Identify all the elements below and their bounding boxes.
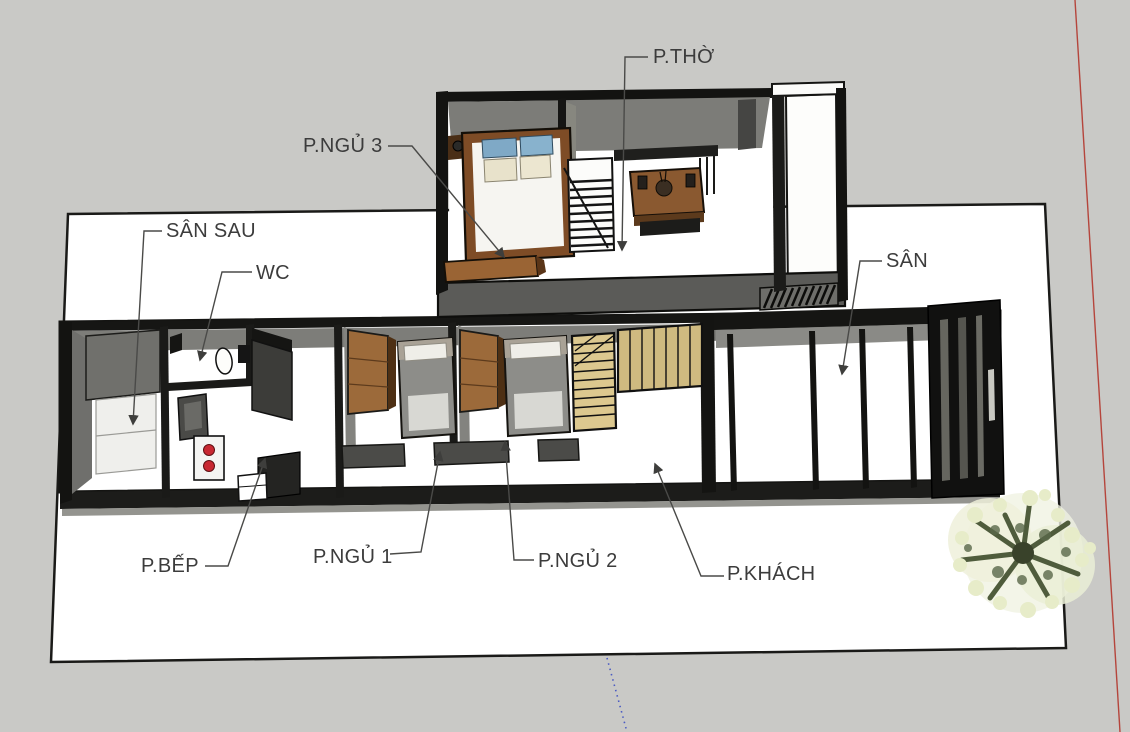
ground-floor [60,300,1004,516]
wardrobe-bedroom-1 [348,330,388,414]
balcony [786,94,838,298]
front-gate [928,300,1004,498]
altar-table [630,168,704,236]
staircase-upper-floor [564,158,614,252]
model-canvas [0,0,1130,732]
sketchup-3d-viewport[interactable]: P.THỜ P.NGỦ 3 SÂN SAU WC SÂN P.BẾP P.NGỦ… [0,0,1130,732]
wardrobe-bedroom-2 [460,330,498,412]
label-p-tho: P.THỜ [653,46,715,69]
label-p-ngu-1: P.NGỦ 1 [313,546,393,569]
label-wc: WC [256,262,290,285]
label-san: SÂN [886,250,928,273]
stove [194,436,224,480]
label-p-ngu-3: P.NGỦ 3 [303,135,383,158]
label-p-bep: P.BẾP [141,555,199,578]
bed-bedroom-2 [504,336,570,436]
kitchen-counter [252,340,292,420]
stove-burner [204,461,215,472]
wall-tho-balcony [772,95,786,292]
label-p-ngu-2: P.NGỦ 2 [538,550,618,573]
louver-vent [760,283,838,310]
label-p-khach: P.KHÁCH [727,563,815,586]
wc-shelf [238,345,250,363]
bed-bedroom-3 [462,128,574,262]
stove-burner [204,445,215,456]
label-san-sau: SÂN SAU [166,220,256,243]
bed-bedroom-1 [398,338,456,438]
balcony-door [738,99,756,150]
upper-floor [436,82,848,317]
san-sau-area [86,330,160,474]
balcony-parapet [772,82,844,96]
